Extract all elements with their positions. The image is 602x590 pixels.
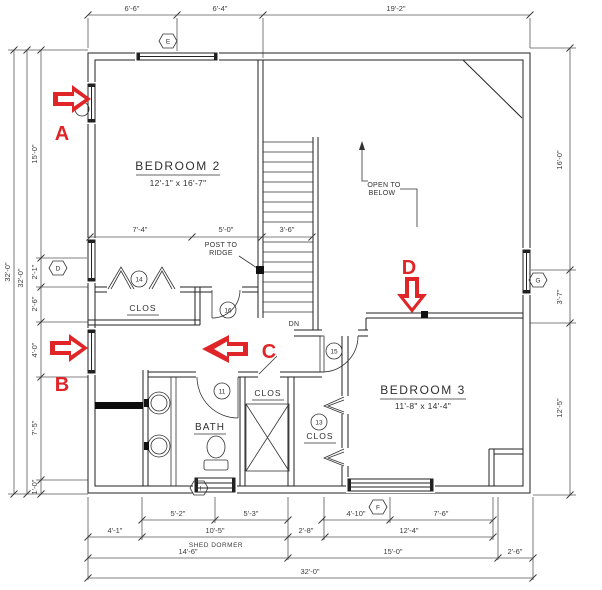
dim-top-2: 6'-4" xyxy=(213,4,228,13)
window-left-b xyxy=(87,328,96,375)
window-mark-right-label: G xyxy=(535,278,540,285)
door-mark-14-label: 14 xyxy=(135,277,143,284)
dim-bottom-r2-4: 12'-4" xyxy=(399,526,418,535)
dim-bottom-r3-1: 14'-6" xyxy=(178,547,197,556)
window-right-g xyxy=(522,248,531,295)
post-to-ridge-line2: RIDGE xyxy=(209,250,233,257)
dim-bottom-r1-4: 7'-6" xyxy=(434,509,449,518)
dim-left-5: 7'-5" xyxy=(30,420,39,435)
window-left-d xyxy=(87,238,96,283)
stairs-down-label: DN xyxy=(289,321,300,328)
floor-plan-canvas: 6'-6" 6'-4" 19'-2" 15'-0" 2'-1" 2'-6" 4'… xyxy=(0,0,602,590)
faucet-1 xyxy=(144,399,149,407)
dim-interior-1: 7'-4" xyxy=(133,225,148,234)
closet-linen-label: CLOS xyxy=(254,388,281,398)
dim-interior-2: 5'-0" xyxy=(219,225,234,234)
ridge-post-1 xyxy=(256,266,264,274)
window-mark-top-label: E xyxy=(166,39,171,46)
window-mark-bedroom3-label: F xyxy=(376,505,380,512)
bath-label: BATH xyxy=(195,422,225,433)
dim-bottom-r2-3: 2'-8" xyxy=(299,526,314,535)
closet-bedroom2-label: CLOS xyxy=(129,303,156,313)
open-to-below-line1: OPEN TO xyxy=(367,182,401,189)
door-mark-16-label: 16 xyxy=(224,308,232,315)
closet-bedroom3-label: CLOS xyxy=(306,431,333,441)
dim-top-1: 6'-6" xyxy=(125,4,140,13)
door-mark-11-label: 11 xyxy=(219,389,226,396)
dim-bottom-r2-1: 4'-1" xyxy=(108,526,123,535)
dim-bottom-overall: 32'-0" xyxy=(300,567,319,576)
floor-plan: 6'-6" 6'-4" 19'-2" 15'-0" 2'-1" 2'-6" 4'… xyxy=(0,0,602,590)
faucet-2 xyxy=(144,442,149,450)
dim-bottom-r2-2: 10'-5" xyxy=(205,526,224,535)
alcove-counter xyxy=(95,402,143,409)
dim-left-1: 15'-0" xyxy=(30,144,39,163)
dim-right-3: 12'-5" xyxy=(555,398,564,417)
dim-bottom-r1-3: 4'-10" xyxy=(346,509,365,518)
bedroom2-label: BEDROOM 2 xyxy=(135,159,221,173)
bedroom3-size: 11'-8" x 14'-4" xyxy=(395,401,451,411)
dim-bottom-r3-3: 2'-6" xyxy=(508,547,523,556)
dim-left-2: 2'-1" xyxy=(30,264,39,279)
dim-bottom-r3-2: 15'-0" xyxy=(383,547,402,556)
dim-interior-3: 3'-6" xyxy=(280,225,295,234)
dim-left-6: 1'-0" xyxy=(30,479,39,494)
bedroom2-size: 12'-1" x 16'-7" xyxy=(150,178,207,188)
dim-left-3: 2'-6" xyxy=(30,296,39,311)
ridge-post-2 xyxy=(421,311,428,318)
annotation-label-c: C xyxy=(262,341,276,363)
window-left-a xyxy=(87,82,96,124)
dim-bottom-r1-2: 5'-3" xyxy=(244,509,259,518)
dim-top-3: 19'-2" xyxy=(386,4,405,13)
annotation-label-a: A xyxy=(55,123,69,145)
dim-right-2: 3'-7" xyxy=(555,289,564,304)
dim-bottom-r1-1: 5'-2" xyxy=(171,509,186,518)
window-bottom-bedroom3 xyxy=(346,477,435,493)
annotation-label-b: B xyxy=(55,374,69,396)
window-mark-left-label: D xyxy=(56,266,61,273)
dim-left-4: 4'-0" xyxy=(30,342,39,357)
post-to-ridge-line1: POST TO xyxy=(205,242,238,249)
window-top-bedroom2 xyxy=(135,52,219,61)
annotation-label-d: D xyxy=(402,257,416,279)
window-mark-bath-label: H xyxy=(197,486,202,493)
door-mark-15-label: 15 xyxy=(330,349,338,356)
dim-right-1: 16'-0" xyxy=(555,150,564,169)
door-mark-13-label: 13 xyxy=(315,420,323,427)
dim-left-overall-1: 32'-0" xyxy=(16,268,25,287)
dim-left-overall-2: 32'-0" xyxy=(3,262,12,281)
bedroom3-label: BEDROOM 3 xyxy=(380,383,466,397)
open-to-below-line2: BELOW xyxy=(369,190,396,197)
